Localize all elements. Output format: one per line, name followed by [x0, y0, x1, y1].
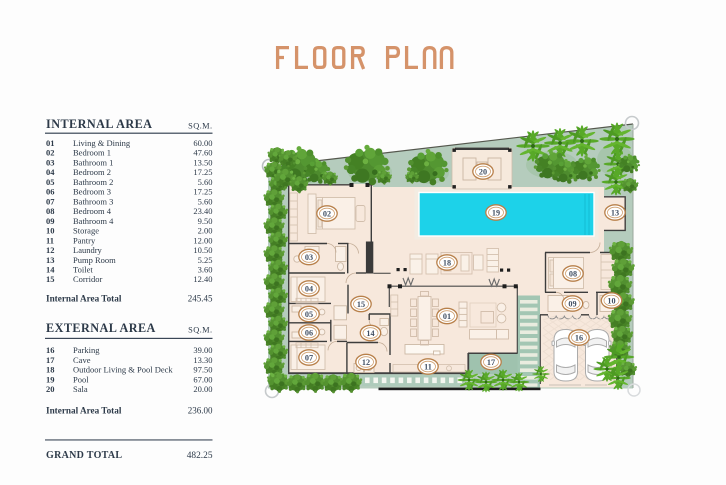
svg-text:Bathroom 4: Bathroom 4	[73, 216, 114, 226]
svg-text:07: 07	[46, 196, 55, 206]
svg-text:17: 17	[46, 355, 55, 365]
svg-text:245.45: 245.45	[188, 294, 213, 304]
svg-text:09: 09	[568, 300, 576, 309]
svg-text:03: 03	[305, 253, 313, 262]
svg-text:Bathroom 2: Bathroom 2	[73, 177, 113, 187]
svg-text:18: 18	[443, 259, 451, 268]
svg-text:Sala: Sala	[73, 384, 88, 394]
svg-text:15: 15	[357, 300, 365, 309]
svg-text:16: 16	[46, 345, 55, 355]
svg-text:03: 03	[46, 158, 55, 168]
svg-text:60.00: 60.00	[193, 138, 212, 148]
svg-text:01: 01	[443, 312, 451, 321]
svg-text:Pump Room: Pump Room	[73, 255, 116, 265]
svg-text:02: 02	[323, 210, 331, 219]
svg-text:11: 11	[424, 363, 432, 372]
svg-text:14: 14	[46, 265, 55, 275]
svg-text:236.00: 236.00	[188, 406, 213, 416]
svg-text:67.00: 67.00	[193, 374, 212, 384]
svg-text:3.60: 3.60	[198, 265, 213, 275]
svg-text:13.50: 13.50	[193, 158, 212, 168]
svg-text:09: 09	[46, 216, 55, 226]
svg-text:10: 10	[46, 226, 55, 236]
svg-text:14: 14	[366, 329, 374, 338]
svg-text:01: 01	[46, 138, 55, 148]
svg-text:23.40: 23.40	[193, 206, 212, 216]
svg-text:20: 20	[46, 384, 55, 394]
svg-text:10.50: 10.50	[193, 245, 212, 255]
svg-text:Bedroom 4: Bedroom 4	[73, 206, 112, 216]
svg-text:5.25: 5.25	[198, 255, 213, 265]
svg-text:19: 19	[46, 374, 55, 384]
svg-text:Pool: Pool	[73, 374, 89, 384]
svg-text:17.25: 17.25	[193, 187, 212, 197]
svg-text:Outdoor Living & Pool Deck: Outdoor Living & Pool Deck	[73, 365, 173, 375]
svg-text:11: 11	[46, 235, 54, 245]
svg-text:20.00: 20.00	[193, 384, 212, 394]
svg-text:Toilet: Toilet	[73, 265, 93, 275]
svg-text:08: 08	[569, 270, 577, 279]
svg-text:Storage: Storage	[73, 226, 99, 236]
svg-text:12.00: 12.00	[193, 235, 212, 245]
svg-text:Bathroom 1: Bathroom 1	[73, 158, 113, 168]
svg-text:39.00: 39.00	[193, 345, 212, 355]
svg-text:07: 07	[305, 354, 313, 363]
svg-text:Cave: Cave	[73, 355, 91, 365]
svg-text:Internal Area Total: Internal Area Total	[46, 294, 122, 304]
svg-text:Living & Dining: Living & Dining	[73, 138, 131, 148]
svg-text:13.30: 13.30	[193, 355, 212, 365]
svg-text:08: 08	[46, 206, 55, 216]
svg-text:Bedroom 2: Bedroom 2	[73, 167, 111, 177]
svg-text:Bedroom 1: Bedroom 1	[73, 148, 111, 158]
svg-text:05: 05	[46, 177, 55, 187]
svg-text:47.60: 47.60	[193, 148, 212, 158]
svg-text:13: 13	[46, 255, 55, 265]
svg-text:12: 12	[362, 358, 370, 367]
svg-text:04: 04	[46, 167, 55, 177]
svg-text:13: 13	[611, 209, 619, 218]
svg-text:Bathroom 3: Bathroom 3	[73, 196, 113, 206]
svg-text:Parking: Parking	[73, 345, 100, 355]
svg-text:Corridor: Corridor	[73, 274, 102, 284]
svg-text:482.25: 482.25	[187, 451, 213, 461]
svg-text:Bedroom 3: Bedroom 3	[73, 187, 111, 197]
svg-text:5.60: 5.60	[198, 177, 213, 187]
svg-text:19: 19	[492, 209, 500, 218]
svg-text:INTERNAL AREA: INTERNAL AREA	[46, 117, 152, 131]
svg-text:Pantry: Pantry	[73, 235, 96, 245]
svg-text:10: 10	[607, 297, 615, 306]
svg-text:GRAND TOTAL: GRAND TOTAL	[46, 450, 122, 461]
svg-text:06: 06	[46, 187, 55, 197]
svg-text:18: 18	[46, 365, 55, 375]
svg-text:15: 15	[46, 274, 55, 284]
svg-text:Laundry: Laundry	[73, 245, 103, 255]
svg-text:17: 17	[487, 358, 495, 367]
svg-text:5.60: 5.60	[198, 196, 213, 206]
svg-text:17.25: 17.25	[193, 167, 212, 177]
svg-text:16: 16	[575, 334, 583, 343]
svg-text:06: 06	[305, 329, 313, 338]
svg-text:12: 12	[46, 245, 55, 255]
svg-text:12.40: 12.40	[193, 274, 212, 284]
svg-text:97.50: 97.50	[193, 365, 212, 375]
svg-text:SQ.M.: SQ.M.	[188, 326, 212, 335]
svg-text:SQ.M.: SQ.M.	[188, 122, 212, 131]
svg-text:20: 20	[479, 168, 487, 177]
svg-text:EXTERNAL AREA: EXTERNAL AREA	[46, 321, 156, 335]
svg-text:2.00: 2.00	[198, 226, 213, 236]
svg-text:05: 05	[305, 310, 313, 319]
svg-text:04: 04	[305, 285, 313, 294]
svg-text:Internal Area Total: Internal Area Total	[46, 406, 122, 416]
svg-text:02: 02	[46, 148, 55, 158]
svg-text:9.50: 9.50	[198, 216, 213, 226]
